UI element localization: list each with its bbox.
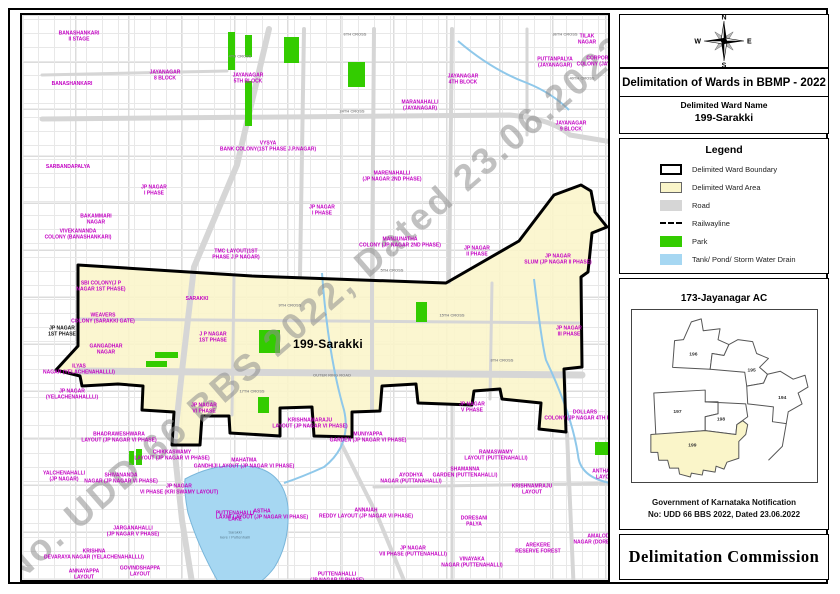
map-area-label: MAHATMA GANDHIJI LAYOUT (JP NAGAR VI PHA… xyxy=(194,458,295,470)
map-area-label: BAKAMMARI NAGAR xyxy=(80,214,111,226)
map-area-label: JAYANAGAR 5TH BLOCK xyxy=(233,73,264,85)
legend-swatch-area-icon xyxy=(660,182,682,193)
street-label: 8TH CROSS xyxy=(491,358,514,363)
ward-name-value: 199-Sarakki xyxy=(620,112,828,124)
legend-box: Legend Delimited Ward BoundaryDelimited … xyxy=(619,138,829,274)
map-area-label: SARAKKI xyxy=(186,297,209,303)
legend-item-label: Park xyxy=(692,237,707,246)
compass-box: N S E W xyxy=(619,14,829,68)
map-area-label: JP NAGAR SLUM (JP NAGAR II PHASE) xyxy=(524,254,591,266)
map-area-label: PUTTANPALYA (JAYANAGAR) xyxy=(537,57,573,69)
street-label: OUTER RING ROAD xyxy=(313,373,351,378)
map-area-label: WEAVERS COLONY (SARAKKI GATE) xyxy=(71,313,135,325)
legend-item: Park xyxy=(620,232,828,250)
legend-item: Railwayline xyxy=(620,214,828,232)
map-area-label: JAYANAGAR 4TH BLOCK xyxy=(448,74,479,86)
inset-outer-boundary xyxy=(768,424,786,461)
map-area-label: JP NAGAR (YELACHENAHALLLI) xyxy=(46,389,98,401)
map-area-label: VENKATADRI LAYOUT (PUTTENAHALLI) xyxy=(565,581,610,582)
map-area-label: JP NAGAR V PHASE xyxy=(459,402,485,414)
street-label: 24TH CROSS xyxy=(339,109,364,114)
inset-ward-number: 194 xyxy=(778,395,786,401)
map-title: Delimitation of Wards in BBMP - 2022 xyxy=(620,69,828,97)
map-area-label: ANNAIAH REDDY LAYOUT (JP NAGAR VI PHASE) xyxy=(319,508,413,520)
map-area-label: PUTTENAHALLI LAKE xyxy=(216,511,254,523)
legend-swatch-water-icon xyxy=(660,254,682,265)
map-area-label: JAYANAGAR 8 BLOCK xyxy=(150,70,181,82)
map-area-label: AMALODBHAVI NAGAR (DORESANIPALYA) xyxy=(573,534,610,546)
legend-title: Legend xyxy=(620,139,828,156)
notification-text: Government of Karnataka Notification No:… xyxy=(620,497,828,521)
map-area-label: JP NAGAR I PHASE xyxy=(141,185,167,197)
map-area-label: GANGADHAR NAGAR xyxy=(89,344,122,356)
inset-map-frame: 196195194197198199 xyxy=(631,309,818,483)
map-area-label: Sarakki kere / Puttenhalli xyxy=(220,530,250,539)
map-area-label: AREKERE RESERVE FOREST xyxy=(515,543,560,555)
map-area-label: PARADISE COLONY (JP NAGAR VI PHASE) xyxy=(417,581,494,582)
commission-box: Delimitation Commission xyxy=(619,534,829,580)
notification-line1: Government of Karnataka Notification xyxy=(620,497,828,509)
main-ward-label: 199-Sarakki xyxy=(293,338,363,352)
map-area-label: ILYAS NAGAR (YELACHENAHALLLI) xyxy=(43,364,115,376)
map-area-label: KRISHNAMRAJU LAYOUT xyxy=(512,484,553,496)
map-area-label: J P NAGAR 1ST PHASE xyxy=(199,332,227,344)
inset-map-title: 173-Jayanagar AC xyxy=(620,279,828,304)
legend-item-label: Tank/ Pond/ Storm Water Drain xyxy=(692,255,796,264)
legend-item-label: Road xyxy=(692,201,710,210)
map-area-label: MARENAHALLI (JP NAGAR 2ND PHASE) xyxy=(362,171,421,183)
map-area-label: VIVEKANANDA COLONY (BANASHANKARI) xyxy=(45,229,112,241)
legend-list: Delimited Ward BoundaryDelimited Ward Ar… xyxy=(620,160,828,268)
map-area-label: JP NAGAR VI PHASE (KRI SWAMY LAYOUT) xyxy=(140,484,218,496)
street-label: 4TH CROSS xyxy=(229,54,252,59)
inset-ward-number: 195 xyxy=(748,367,756,373)
map-area-label: SHIVANANDA NAGAR (JP NAGAR VI PHASE) xyxy=(84,473,158,485)
map-labels-layer: BANASHANKARI II STAGEBANASHANKARISARBAND… xyxy=(22,15,608,580)
map-area-label: TMC LAYOUT(1ST PHASE J.P NAGAR) xyxy=(212,249,259,261)
map-area-label: RAMASWAMY LAYOUT (PUTTENAHALLI) xyxy=(464,450,527,462)
legend-item: Delimited Ward Boundary xyxy=(620,160,828,178)
inset-ward-number: 196 xyxy=(689,351,697,357)
street-label: 40TH CROSS xyxy=(569,76,594,81)
map-area-label: ANNAYAPPA LAYOUT xyxy=(69,569,99,581)
street-label: 9TH CROSS xyxy=(279,303,302,308)
legend-item: Road xyxy=(620,196,828,214)
map-area-label: PUTTENAHALLI (JP NAGAR VI PHASE) xyxy=(310,572,364,582)
legend-item: Delimited Ward Area xyxy=(620,178,828,196)
inset-map-drawing: 196195194197198199 xyxy=(632,310,815,480)
street-label: 17TH CROSS xyxy=(239,389,264,394)
ward-name-heading: Delimited Ward Name xyxy=(620,100,828,110)
commission-title: Delimitation Commission xyxy=(629,547,820,567)
map-area-label: KRISHNA DEVARAYA NAGAR (YELACHENAHALLLI) xyxy=(44,549,144,561)
map-area-label: JARGANAHALLI (JP NAGAR V PHASE) xyxy=(107,526,159,538)
street-label: 6TH CROSS xyxy=(344,32,367,37)
compass-rose-icon: N S E W xyxy=(664,15,784,67)
map-area-label: VYSYA BANK COLONY(1ST PHASE J.P.NAGAR) xyxy=(220,141,316,153)
map-area-label: KRISHNAMARAJU LAYOUT (JP NAGAR VI PHASE) xyxy=(272,418,347,430)
street-label: 15TH CROSS xyxy=(439,313,464,318)
map-canvas: No. UDD 66 BBS 2022, Dated 23.06.2022 BA… xyxy=(20,13,610,582)
map-area-label: JP NAGAR VI PHASE xyxy=(191,403,217,415)
map-area-label: TILAK NAGAR xyxy=(578,34,596,46)
inset-ward-number: 198 xyxy=(717,417,725,423)
inset-ward-number: 199 xyxy=(688,442,696,448)
compass-n: N xyxy=(721,15,726,22)
map-area-label: JP NAGAR VII PHASE (PUTTENAHALLI) xyxy=(379,546,447,558)
map-area-label: JP NAGAR I PHASE xyxy=(309,205,335,217)
map-area-label: DORESANI PALYA xyxy=(461,516,487,528)
compass-e: E xyxy=(747,39,752,46)
map-area-label: JP NAGAR III PHASE xyxy=(556,326,582,338)
legend-swatch-road-icon xyxy=(660,200,682,211)
map-area-label: CORPORATION COLONY (JAYANAGAR) xyxy=(577,56,610,68)
compass-s: S xyxy=(722,63,727,68)
legend-item: Tank/ Pond/ Storm Water Drain xyxy=(620,250,828,268)
notification-line2: No: UDD 66 BBS 2022, Dated 23.06.2022 xyxy=(620,509,828,521)
legend-swatch-boundary-icon xyxy=(660,164,682,175)
map-area-label: JP NAGAR II PHASE xyxy=(464,246,490,258)
map-area-label: BANASHANKARI II STAGE xyxy=(59,31,100,43)
map-area-label: JAYANAGAR 9 BLOCK xyxy=(556,121,587,133)
map-area-label: SHAMANNA GARDEN (PUTTENAHALLI) xyxy=(433,467,498,479)
map-area-label: YALCHENAHALLI (JP NAGAR) xyxy=(43,471,85,483)
legend-item-label: Delimited Ward Boundary xyxy=(692,165,777,174)
inset-ward-number: 197 xyxy=(673,409,681,415)
legend-item-label: Railwayline xyxy=(692,219,730,228)
street-label: 5TH CROSS xyxy=(381,268,404,273)
compass-w: W xyxy=(694,39,701,46)
legend-swatch-rail-icon xyxy=(660,222,682,224)
map-area-label: BHADRAWESHWARA LAYOUT (JP NAGAR VI PHASE… xyxy=(81,432,156,444)
legend-item-label: Delimited Ward Area xyxy=(692,183,761,192)
map-area-label: SARBANDAPALYA xyxy=(46,165,90,171)
map-area-label: BANASHANKARI xyxy=(52,82,93,88)
map-area-label: MANJUNATHA COLONY (JP NAGAR 2ND PHASE) xyxy=(359,237,441,249)
street-label: 36TH CROSS xyxy=(552,32,577,37)
map-area-label: JP NAGAR 1ST PHASE xyxy=(48,326,76,338)
map-area-label: SBI COLONY(J P NAGAR 1ST PHASE) xyxy=(76,281,125,293)
map-area-label: VINAYAKA NAGAR (PUTTENAHALLI) xyxy=(441,557,502,569)
map-area-label: GOVINDSHAPPA LAYOUT xyxy=(120,566,160,578)
map-area-label: ANTHAPPA LAYOUT xyxy=(592,469,610,481)
inset-box: 173-Jayanagar AC 196195194197198199 Gove… xyxy=(619,278,829,530)
title-box: Delimitation of Wards in BBMP - 2022 Del… xyxy=(619,68,829,134)
legend-swatch-park-icon xyxy=(660,236,682,247)
map-area-label: DOLLARS COLONY (JP NAGAR 4TH PHASE) xyxy=(544,410,610,422)
map-area-label: MUNIYAPPA GARDEN (JP NAGAR VI PHASE) xyxy=(330,432,407,444)
map-area-label: MARANAHALLI (JAYANAGAR) xyxy=(402,100,439,112)
